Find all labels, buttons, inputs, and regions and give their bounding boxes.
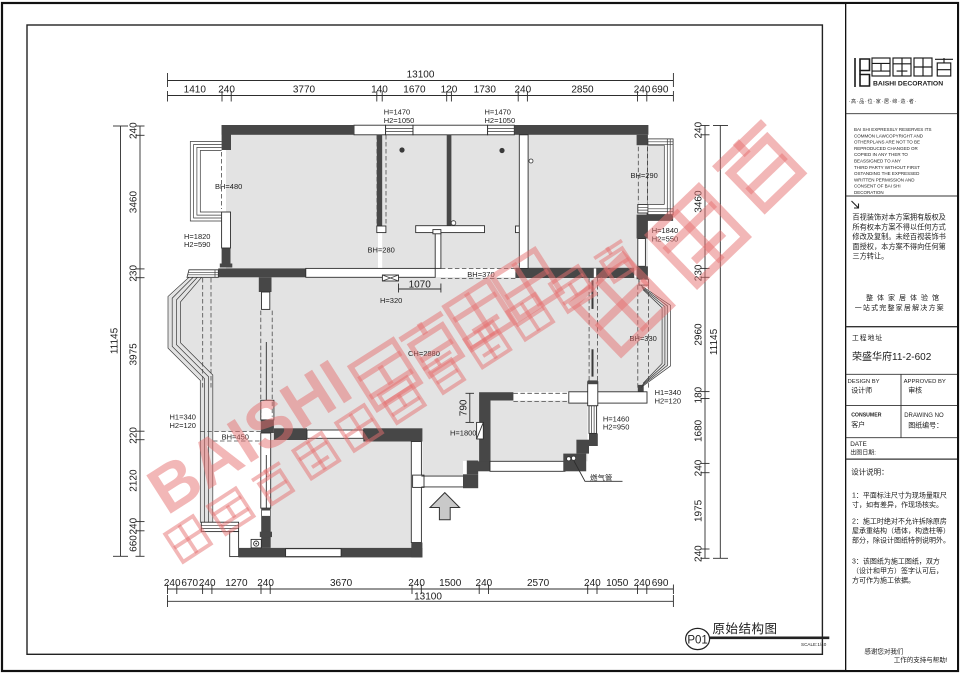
svg-text:一站式完整家居解决方案: 一站式完整家居解决方案: [855, 303, 945, 312]
svg-text:240: 240: [257, 578, 274, 589]
svg-text:BH=290: BH=290: [631, 171, 658, 180]
svg-text:DESIGN BY: DESIGN BY: [848, 379, 880, 385]
svg-text:设计说明：: 设计说明：: [851, 467, 889, 477]
svg-text:BAI SHI EXPRESSLY RESERVES ITS: BAI SHI EXPRESSLY RESERVES ITS: [854, 127, 932, 132]
svg-text:2120: 2120: [129, 469, 140, 492]
svg-text:H2=1050: H2=1050: [485, 116, 516, 125]
svg-text:审核: 审核: [908, 386, 922, 395]
svg-text:百视装饰对本方案拥有版权及: 百视装饰对本方案拥有版权及: [852, 213, 945, 222]
svg-text:APPROVED BY: APPROVED BY: [904, 379, 946, 385]
svg-text:240: 240: [129, 517, 140, 534]
svg-text:120: 120: [441, 85, 458, 96]
svg-text:OTHERPLANS ARE NOT TO BE: OTHERPLANS ARE NOT TO BE: [854, 140, 920, 145]
svg-text:H2=120: H2=120: [655, 397, 681, 406]
svg-text:1670: 1670: [403, 85, 426, 96]
svg-text:690: 690: [652, 85, 669, 96]
svg-text:3460: 3460: [129, 191, 140, 214]
svg-text:DRAWING NO: DRAWING NO: [904, 413, 944, 419]
svg-text:230: 230: [129, 265, 140, 282]
svg-text:（设计和甲方）签字认可后，: （设计和甲方）签字认可后，: [852, 566, 943, 575]
svg-text:WRITTEN PERMISSION AND: WRITTEN PERMISSION AND: [854, 177, 915, 182]
svg-text:140: 140: [371, 85, 388, 96]
svg-text:方可作为施工依据。: 方可作为施工依据。: [852, 576, 915, 585]
svg-text:220: 220: [129, 427, 140, 444]
svg-text:BAISHI DECORATION: BAISHI DECORATION: [873, 81, 943, 88]
svg-text:180: 180: [694, 386, 705, 403]
svg-text:11145: 11145: [110, 327, 121, 354]
svg-text:690: 690: [652, 578, 669, 589]
svg-text:COPIED IN ANY THER TO: COPIED IN ANY THER TO: [854, 152, 908, 157]
svg-text:11145: 11145: [709, 328, 720, 355]
svg-text:原始结构图: 原始结构图: [713, 621, 778, 636]
svg-text:部分，除设计图纸特例说明外。: 部分，除设计图纸特例说明外。: [852, 536, 950, 545]
svg-text:240: 240: [694, 459, 705, 476]
svg-text:H=320: H=320: [380, 296, 402, 305]
svg-text:240: 240: [129, 122, 140, 139]
svg-text:H2=1050: H2=1050: [384, 116, 415, 125]
svg-text:感谢您对我们: 感谢您对我们: [864, 647, 903, 656]
svg-text:240: 240: [694, 545, 705, 562]
svg-text:1500: 1500: [439, 578, 462, 589]
svg-text:240: 240: [476, 578, 493, 589]
svg-text:3975: 3975: [129, 343, 140, 366]
svg-text:DECORATION: DECORATION: [854, 190, 884, 195]
svg-text:2：施工时绝对不允许拆除原房: 2：施工时绝对不允许拆除原房: [852, 517, 947, 526]
svg-text:3770: 3770: [293, 85, 316, 96]
svg-text:2850: 2850: [571, 85, 594, 96]
svg-text:1680: 1680: [694, 419, 705, 442]
svg-text:240: 240: [634, 85, 651, 96]
svg-text:REPRODUCED CHANGED OR: REPRODUCED CHANGED OR: [854, 146, 919, 151]
svg-text:工程地址: 工程地址: [852, 333, 883, 342]
svg-text:1975: 1975: [694, 499, 705, 522]
svg-text:13100: 13100: [414, 592, 442, 603]
svg-text:13100: 13100: [407, 70, 435, 81]
svg-text:BEASSIGNED TO ANY: BEASSIGNED TO ANY: [854, 159, 901, 164]
svg-text:H2=950: H2=950: [603, 423, 629, 432]
svg-text:荣盛华府11-2-602: 荣盛华府11-2-602: [852, 350, 932, 363]
svg-text:整体家居体验馆: 整体家居体验馆: [866, 293, 943, 302]
svg-text:DATE: DATE: [850, 441, 867, 448]
svg-text:1730: 1730: [474, 85, 497, 96]
svg-text:BH=480: BH=480: [215, 182, 242, 191]
svg-text:240: 240: [199, 578, 216, 589]
svg-text:3670: 3670: [330, 578, 353, 589]
svg-text:工作的支持与帮助!: 工作的支持与帮助!: [894, 655, 948, 664]
svg-text:1：平面标注尺寸为现场量取尺: 1：平面标注尺寸为现场量取尺: [852, 491, 947, 500]
svg-text:OSTANDING THE EXPRESSED: OSTANDING THE EXPRESSED: [854, 171, 920, 176]
svg-text:出图日期:: 出图日期:: [850, 449, 876, 457]
svg-text:寸，如有差异，作现场核实。: 寸，如有差异，作现场核实。: [852, 500, 943, 509]
svg-text:THIRD PARTY WITHOUT FIRST: THIRD PARTY WITHOUT FIRST: [854, 165, 920, 170]
svg-text:所有权本方案不得以任何方式: 所有权本方案不得以任何方式: [852, 222, 945, 231]
svg-text:240: 240: [218, 85, 235, 96]
svg-text:240: 240: [514, 85, 531, 96]
svg-text:客户: 客户: [851, 420, 865, 429]
svg-text:2960: 2960: [694, 323, 705, 346]
svg-text:P01: P01: [687, 634, 707, 646]
svg-text:SCALE:1/40: SCALE:1/40: [801, 642, 827, 647]
svg-text:BH=280: BH=280: [368, 246, 395, 255]
svg-text:H=1800: H=1800: [450, 429, 476, 438]
svg-text:660: 660: [129, 535, 140, 552]
svg-text:1410: 1410: [184, 85, 207, 96]
svg-text:1050: 1050: [606, 578, 629, 589]
svg-text:图纸编号：: 图纸编号：: [908, 421, 943, 430]
svg-text:240: 240: [164, 578, 181, 589]
svg-text:240: 240: [584, 578, 601, 589]
svg-text:240: 240: [634, 578, 651, 589]
svg-text:设计师: 设计师: [851, 386, 872, 395]
svg-text:修改及复制。未经百视装饰书: 修改及复制。未经百视装饰书: [852, 232, 945, 241]
svg-text:H2=590: H2=590: [184, 240, 210, 249]
svg-text:1270: 1270: [225, 578, 248, 589]
svg-text:790: 790: [459, 399, 470, 416]
svg-text:670: 670: [181, 578, 198, 589]
svg-text:燃气管: 燃气管: [590, 473, 613, 483]
svg-text:CONSENT OF BAI SHI: CONSENT OF BAI SHI: [854, 184, 901, 189]
svg-text:屋承重结构（墙体，构造柱等）: 屋承重结构（墙体，构造柱等）: [852, 526, 950, 535]
svg-text:COMMON LAWCOPYRIGHT AND: COMMON LAWCOPYRIGHT AND: [854, 133, 924, 138]
svg-text:240: 240: [408, 578, 425, 589]
svg-text:CONSUMER: CONSUMER: [851, 413, 882, 419]
svg-text:240: 240: [694, 121, 705, 138]
svg-text:3：该图纸为施工图纸，双方: 3：该图纸为施工图纸，双方: [852, 557, 940, 566]
svg-text:1070: 1070: [409, 280, 432, 291]
svg-text:·高·品·位·家·居·缔·造·者·: ·高·品·位·家·居·缔·造·者·: [849, 98, 918, 105]
svg-text:三方转让。: 三方转让。: [852, 252, 888, 261]
svg-text:2570: 2570: [527, 578, 550, 589]
svg-text:面授权，本方案不得向任何第: 面授权，本方案不得向任何第: [852, 242, 945, 251]
